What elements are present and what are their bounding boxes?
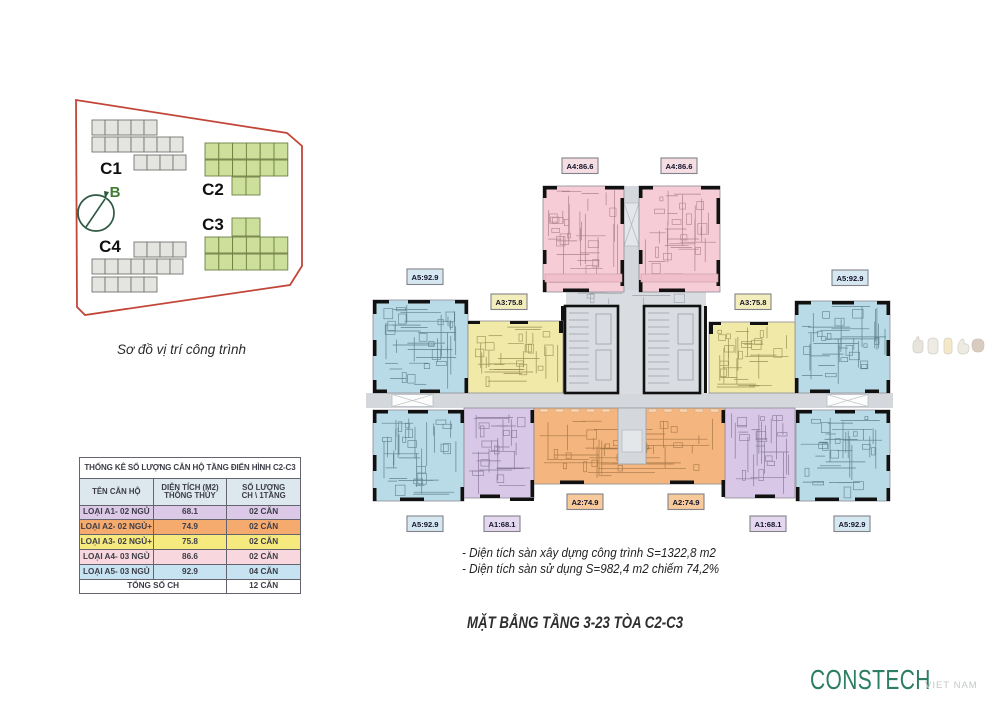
svg-text:A1:68.1: A1:68.1 (754, 520, 782, 529)
svg-text:A5:92.9: A5:92.9 (836, 274, 863, 283)
svg-text:C3: C3 (202, 215, 224, 234)
svg-text:A4:86.6: A4:86.6 (665, 162, 692, 171)
svg-text:C4: C4 (99, 237, 121, 256)
svg-text:A5:92.9: A5:92.9 (411, 273, 438, 282)
svg-text:A5:92.9: A5:92.9 (838, 520, 865, 529)
svg-text:C2: C2 (202, 180, 224, 199)
svg-text:B: B (110, 184, 121, 201)
svg-text:A2:74.9: A2:74.9 (672, 498, 699, 507)
svg-text:A3:75.8: A3:75.8 (739, 298, 766, 307)
svg-text:A2:74.9: A2:74.9 (571, 498, 598, 507)
svg-text:C1: C1 (100, 159, 122, 178)
svg-text:A4:86.6: A4:86.6 (566, 162, 593, 171)
svg-text:A3:75.8: A3:75.8 (495, 298, 522, 307)
svg-text:A1:68.1: A1:68.1 (488, 520, 516, 529)
svg-text:A5:92.9: A5:92.9 (411, 520, 438, 529)
